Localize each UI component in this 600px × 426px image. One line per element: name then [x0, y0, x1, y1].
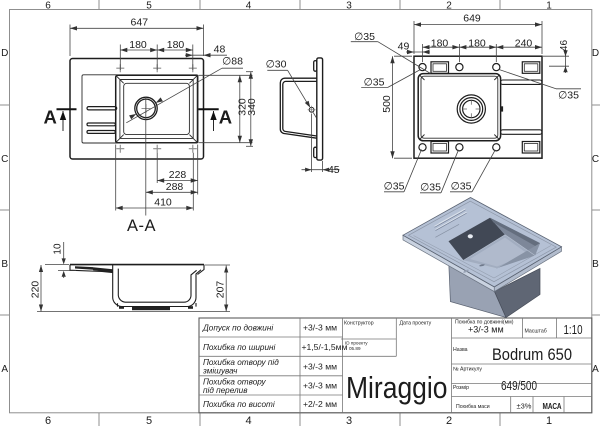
svg-text:Похибка по ширині: Похибка по ширині — [203, 343, 276, 352]
svg-text:A-A: A-A — [127, 217, 156, 235]
svg-text:Допуск по довжині: Допуск по довжині — [202, 324, 273, 333]
svg-text:∅30: ∅30 — [266, 59, 287, 71]
svg-text:B: B — [1, 259, 8, 270]
svg-text:під перелив: під перелив — [203, 386, 248, 395]
svg-text:05.89: 05.89 — [349, 346, 361, 351]
svg-text:2: 2 — [446, 1, 452, 12]
svg-text:∅35: ∅35 — [451, 181, 472, 193]
svg-text:A: A — [219, 107, 232, 128]
svg-text:6: 6 — [45, 1, 51, 12]
svg-text:5: 5 — [146, 415, 152, 426]
svg-text:∅35: ∅35 — [420, 182, 441, 194]
svg-text:±3%: ±3% — [517, 402, 532, 411]
svg-text:змішувач: змішувач — [202, 367, 238, 376]
svg-text:A: A — [1, 364, 8, 375]
svg-text:180: 180 — [129, 39, 147, 51]
svg-text:647: 647 — [131, 16, 149, 28]
svg-text:∅35: ∅35 — [354, 31, 375, 43]
svg-text:Конструктор: Конструктор — [344, 321, 374, 327]
svg-text:B: B — [592, 259, 599, 270]
svg-text:5: 5 — [146, 1, 152, 12]
svg-text:C: C — [1, 154, 8, 165]
svg-text:+1,5/-1,5мм: +1,5/-1,5мм — [302, 342, 348, 352]
svg-text:A: A — [44, 107, 57, 128]
svg-text:10: 10 — [53, 243, 64, 255]
svg-text:500: 500 — [381, 95, 393, 113]
svg-text:A: A — [592, 364, 599, 375]
svg-text:Дата проекту: Дата проекту — [400, 321, 432, 327]
svg-text:1:10: 1:10 — [564, 322, 583, 337]
svg-text:49: 49 — [398, 41, 410, 53]
svg-text:2: 2 — [446, 415, 452, 426]
svg-text:Miraggio: Miraggio — [346, 371, 448, 405]
svg-text:240: 240 — [515, 37, 533, 49]
svg-text:D: D — [592, 48, 599, 59]
svg-text:+3/-3 мм: +3/-3 мм — [303, 323, 337, 333]
svg-text:410: 410 — [154, 197, 172, 209]
svg-text:МАСА: МАСА — [543, 401, 562, 411]
svg-text:+3/-3 мм: +3/-3 мм — [303, 381, 337, 391]
svg-text:Bodrum 650: Bodrum 650 — [492, 346, 572, 364]
svg-text:45: 45 — [328, 164, 340, 176]
svg-text:∅88: ∅88 — [222, 56, 243, 68]
svg-text:48: 48 — [214, 44, 226, 56]
svg-text:+2/-2 мм: +2/-2 мм — [303, 399, 337, 409]
svg-text:3: 3 — [346, 415, 352, 426]
svg-text:4: 4 — [246, 1, 252, 12]
svg-text:3: 3 — [346, 1, 352, 12]
svg-text:207: 207 — [214, 281, 226, 299]
svg-text:∅35: ∅35 — [558, 90, 579, 102]
svg-text:Розмір: Розмір — [453, 385, 469, 391]
svg-text:∅35: ∅35 — [364, 77, 385, 89]
svg-text:D: D — [1, 48, 8, 59]
svg-text:Похибка по висоті: Похибка по висоті — [203, 400, 275, 409]
svg-text:180: 180 — [431, 37, 449, 49]
svg-text:1: 1 — [546, 415, 552, 426]
svg-text:∅35: ∅35 — [384, 181, 405, 193]
svg-text:180: 180 — [167, 39, 185, 51]
svg-text:649: 649 — [463, 13, 481, 25]
svg-text:288: 288 — [166, 181, 184, 193]
svg-text:6: 6 — [45, 415, 51, 426]
svg-text:46: 46 — [559, 40, 570, 52]
svg-text:228: 228 — [169, 169, 187, 181]
svg-text:649/500: 649/500 — [501, 379, 537, 393]
svg-text:180: 180 — [468, 37, 486, 49]
svg-text:ID проекту: ID проекту — [345, 341, 368, 346]
svg-text:4: 4 — [245, 415, 251, 426]
svg-text:Масштаб: Масштаб — [525, 329, 547, 335]
svg-text:Назва: Назва — [453, 347, 468, 353]
svg-text:340: 340 — [246, 98, 258, 116]
svg-text:220: 220 — [29, 281, 41, 299]
svg-text:+3/-3 мм: +3/-3 мм — [468, 325, 504, 335]
svg-text:Похибка маси: Похибка маси — [456, 404, 490, 410]
svg-text:C: C — [592, 154, 599, 165]
svg-text:№ Артикулу: № Артикулу — [453, 367, 482, 373]
svg-text:1: 1 — [546, 1, 552, 12]
svg-text:+3/-3 мм: +3/-3 мм — [303, 362, 337, 372]
